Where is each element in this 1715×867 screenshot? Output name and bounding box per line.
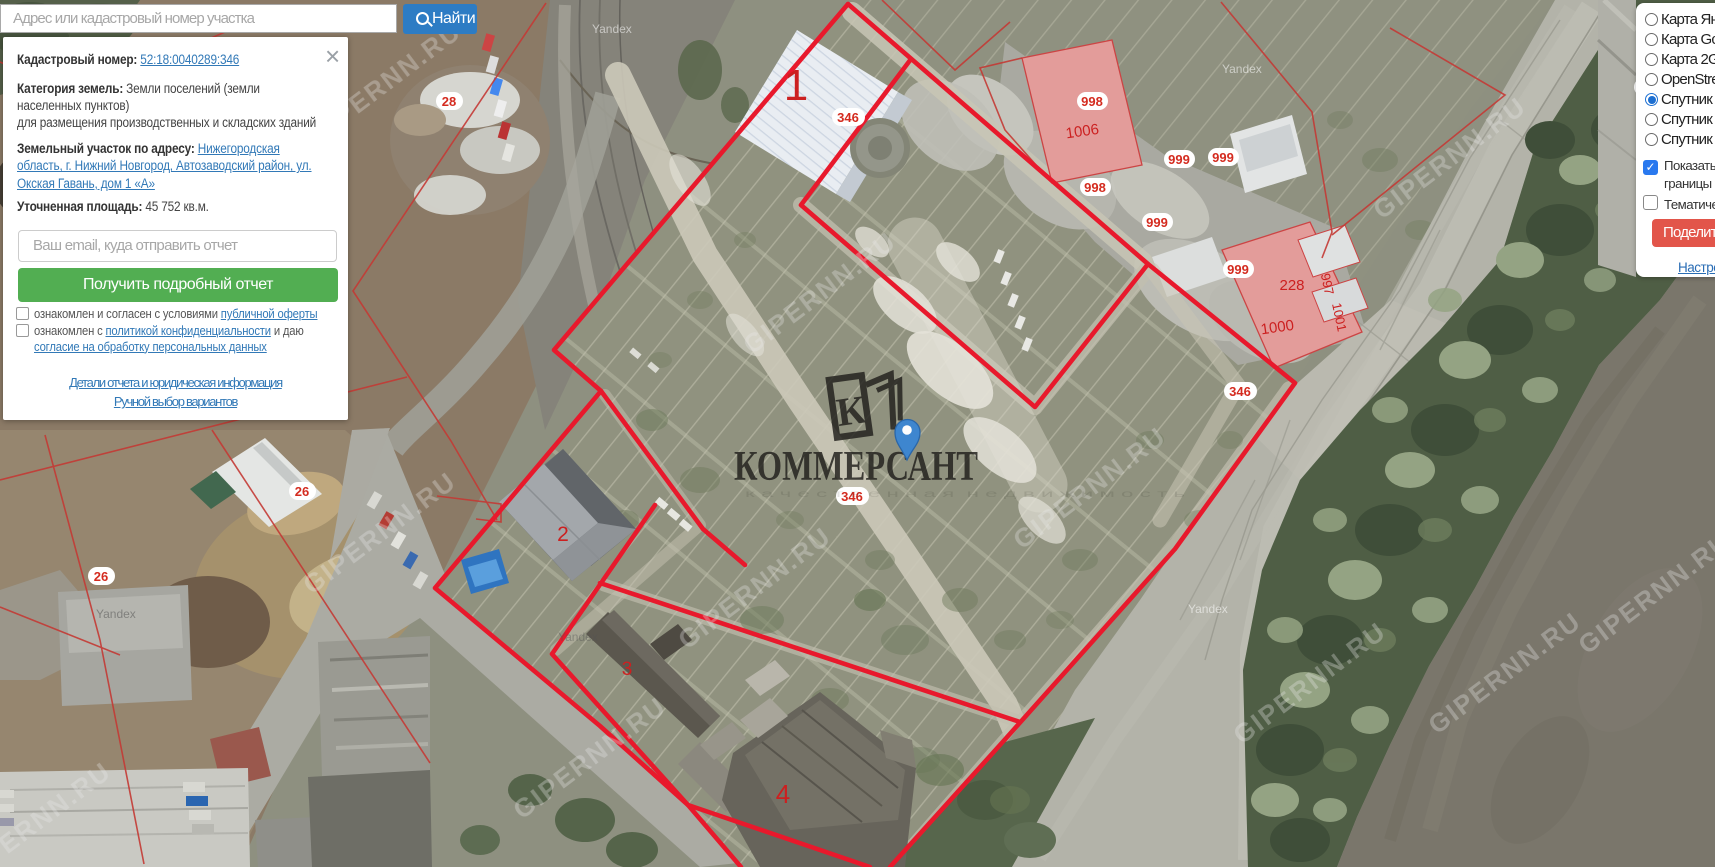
svg-text:К: К [834,386,869,435]
svg-text:999: 999 [1212,150,1234,165]
svg-text:Yandex: Yandex [592,22,632,36]
svg-text:26: 26 [295,484,309,499]
svg-text:3: 3 [622,659,633,680]
svg-text:999: 999 [1168,152,1190,167]
svg-text:Yandex: Yandex [558,630,598,644]
svg-text:998: 998 [1084,180,1106,195]
svg-text:999: 999 [1146,215,1168,230]
svg-text:Yandex: Yandex [1222,62,1262,76]
svg-text:к а ч е с т в е н н а я н е д: к а ч е с т в е н н а я н е д в и ж и м … [745,489,1185,500]
svg-text:Yandex: Yandex [96,607,136,621]
svg-text:26: 26 [94,569,108,584]
svg-text:4: 4 [776,779,790,809]
svg-text:346: 346 [1229,384,1251,399]
svg-text:998: 998 [1081,94,1103,109]
svg-text:КОММЕРСАНТ: КОММЕРСАНТ [734,444,978,490]
svg-text:2: 2 [557,523,569,546]
svg-text:Yandex: Yandex [1188,602,1228,616]
svg-text:1: 1 [784,61,808,110]
svg-text:999: 999 [1227,262,1249,277]
svg-text:346: 346 [837,110,859,125]
svg-text:28: 28 [442,94,456,109]
svg-text:228: 228 [1279,277,1304,294]
